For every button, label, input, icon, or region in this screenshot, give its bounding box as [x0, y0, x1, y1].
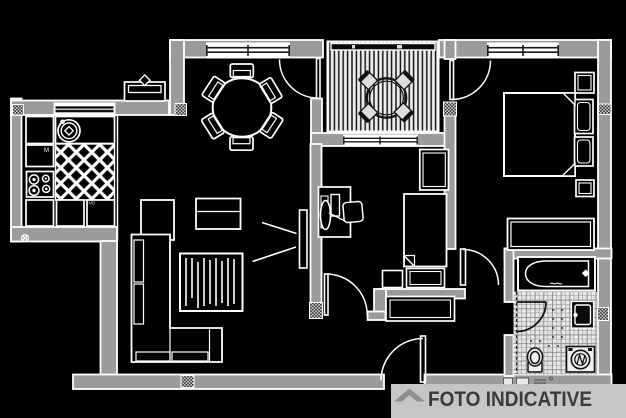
svg-text:FOTO INDICATIVE: FOTO INDICATIVE — [428, 387, 592, 411]
svg-text:M: M — [44, 148, 49, 154]
svg-text:MB: MB — [89, 201, 96, 206]
